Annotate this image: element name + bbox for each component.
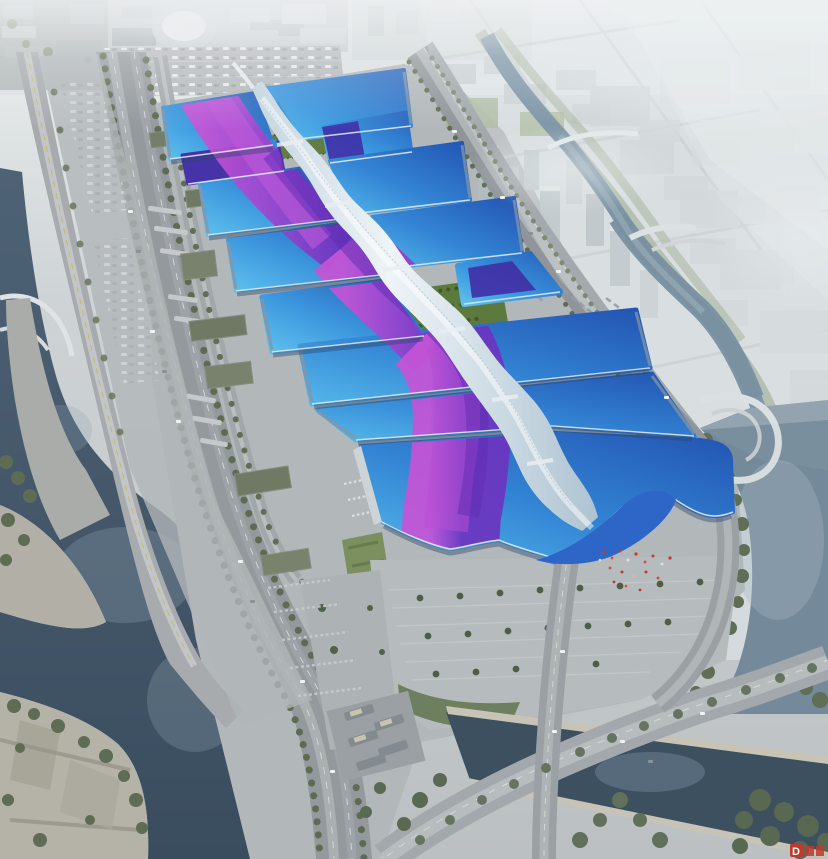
svg-text:D: D <box>792 846 800 858</box>
